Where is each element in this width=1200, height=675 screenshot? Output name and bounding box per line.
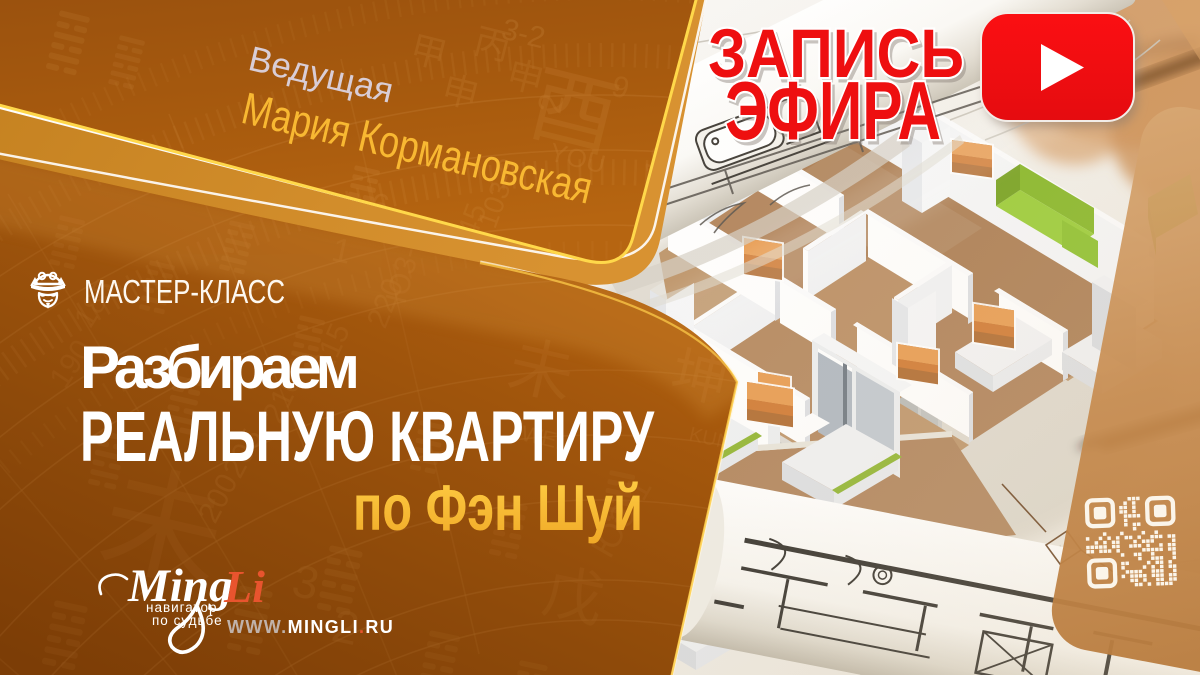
svg-text:ЭФИРА: ЭФИРА	[725, 64, 941, 157]
svg-text:по Фэн Шуй: по Фэн Шуй	[353, 471, 643, 544]
svg-text:по судьбе: по судьбе	[152, 613, 223, 628]
svg-text:МАСТЕР-КЛАСС: МАСТЕР-КЛАСС	[84, 273, 285, 310]
svg-text:Li: Li	[223, 561, 265, 612]
svg-text:РЕАЛЬНУЮ КВАРТИРУ: РЕАЛЬНУЮ КВАРТИРУ	[80, 398, 655, 477]
svg-text:Разбираем: Разбираем	[80, 334, 360, 401]
svg-text:WWW.MINGLI.RU: WWW.MINGLI.RU	[227, 617, 394, 637]
